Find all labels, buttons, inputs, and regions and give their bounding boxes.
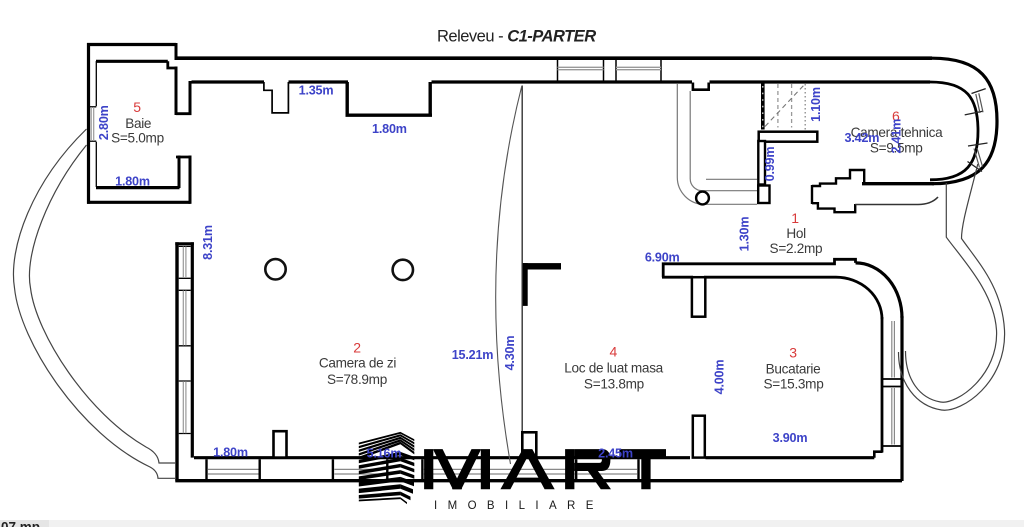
svg-text:Bucatarie: Bucatarie [766, 362, 821, 377]
svg-text:2.80m: 2.80m [97, 105, 111, 140]
svg-text:2.45m: 2.45m [598, 447, 633, 461]
svg-text:3.42m: 3.42m [845, 131, 880, 145]
svg-text:1.80m: 1.80m [115, 175, 150, 189]
svg-text:1.80m: 1.80m [372, 122, 407, 136]
svg-text:Hol: Hol [786, 226, 806, 241]
svg-text:1.80m: 1.80m [213, 446, 248, 460]
svg-text:07 mp: 07 mp [1, 520, 40, 527]
svg-text:15.21m: 15.21m [452, 348, 494, 362]
svg-text:2: 2 [353, 339, 361, 355]
svg-text:1: 1 [791, 210, 799, 226]
svg-text:5: 5 [133, 99, 141, 115]
svg-text:3: 3 [789, 344, 797, 360]
svg-text:5.16m: 5.16m [367, 447, 402, 461]
svg-text:Baie: Baie [125, 116, 151, 131]
svg-text:6.90m: 6.90m [645, 250, 680, 264]
svg-text:S=78.9mp: S=78.9mp [327, 372, 387, 387]
svg-text:Camera de zi: Camera de zi [319, 356, 397, 371]
svg-text:IMOBILIARE: IMOBILIARE [434, 500, 604, 512]
svg-text:S=2.2mp: S=2.2mp [770, 241, 823, 256]
svg-text:1.10m: 1.10m [809, 87, 823, 122]
svg-text:S=13.8mp: S=13.8mp [584, 376, 644, 391]
svg-text:Releveu - C1-PARTER: Releveu - C1-PARTER [437, 28, 596, 46]
svg-text:4.00m: 4.00m [713, 360, 727, 395]
svg-text:4: 4 [610, 344, 618, 360]
svg-text:1.30m: 1.30m [738, 217, 752, 252]
svg-text:1.35m: 1.35m [299, 84, 334, 98]
svg-text:4.30m: 4.30m [503, 336, 517, 371]
svg-text:8.31m: 8.31m [201, 225, 215, 260]
svg-text:S=15.3mp: S=15.3mp [764, 377, 824, 392]
svg-text:S=5.0mp: S=5.0mp [111, 130, 164, 145]
svg-text:2.41m: 2.41m [890, 119, 904, 154]
svg-text:0.99m: 0.99m [763, 147, 777, 182]
svg-text:3.90m: 3.90m [773, 431, 808, 445]
svg-text:Loc de luat masa: Loc de luat masa [564, 360, 663, 375]
